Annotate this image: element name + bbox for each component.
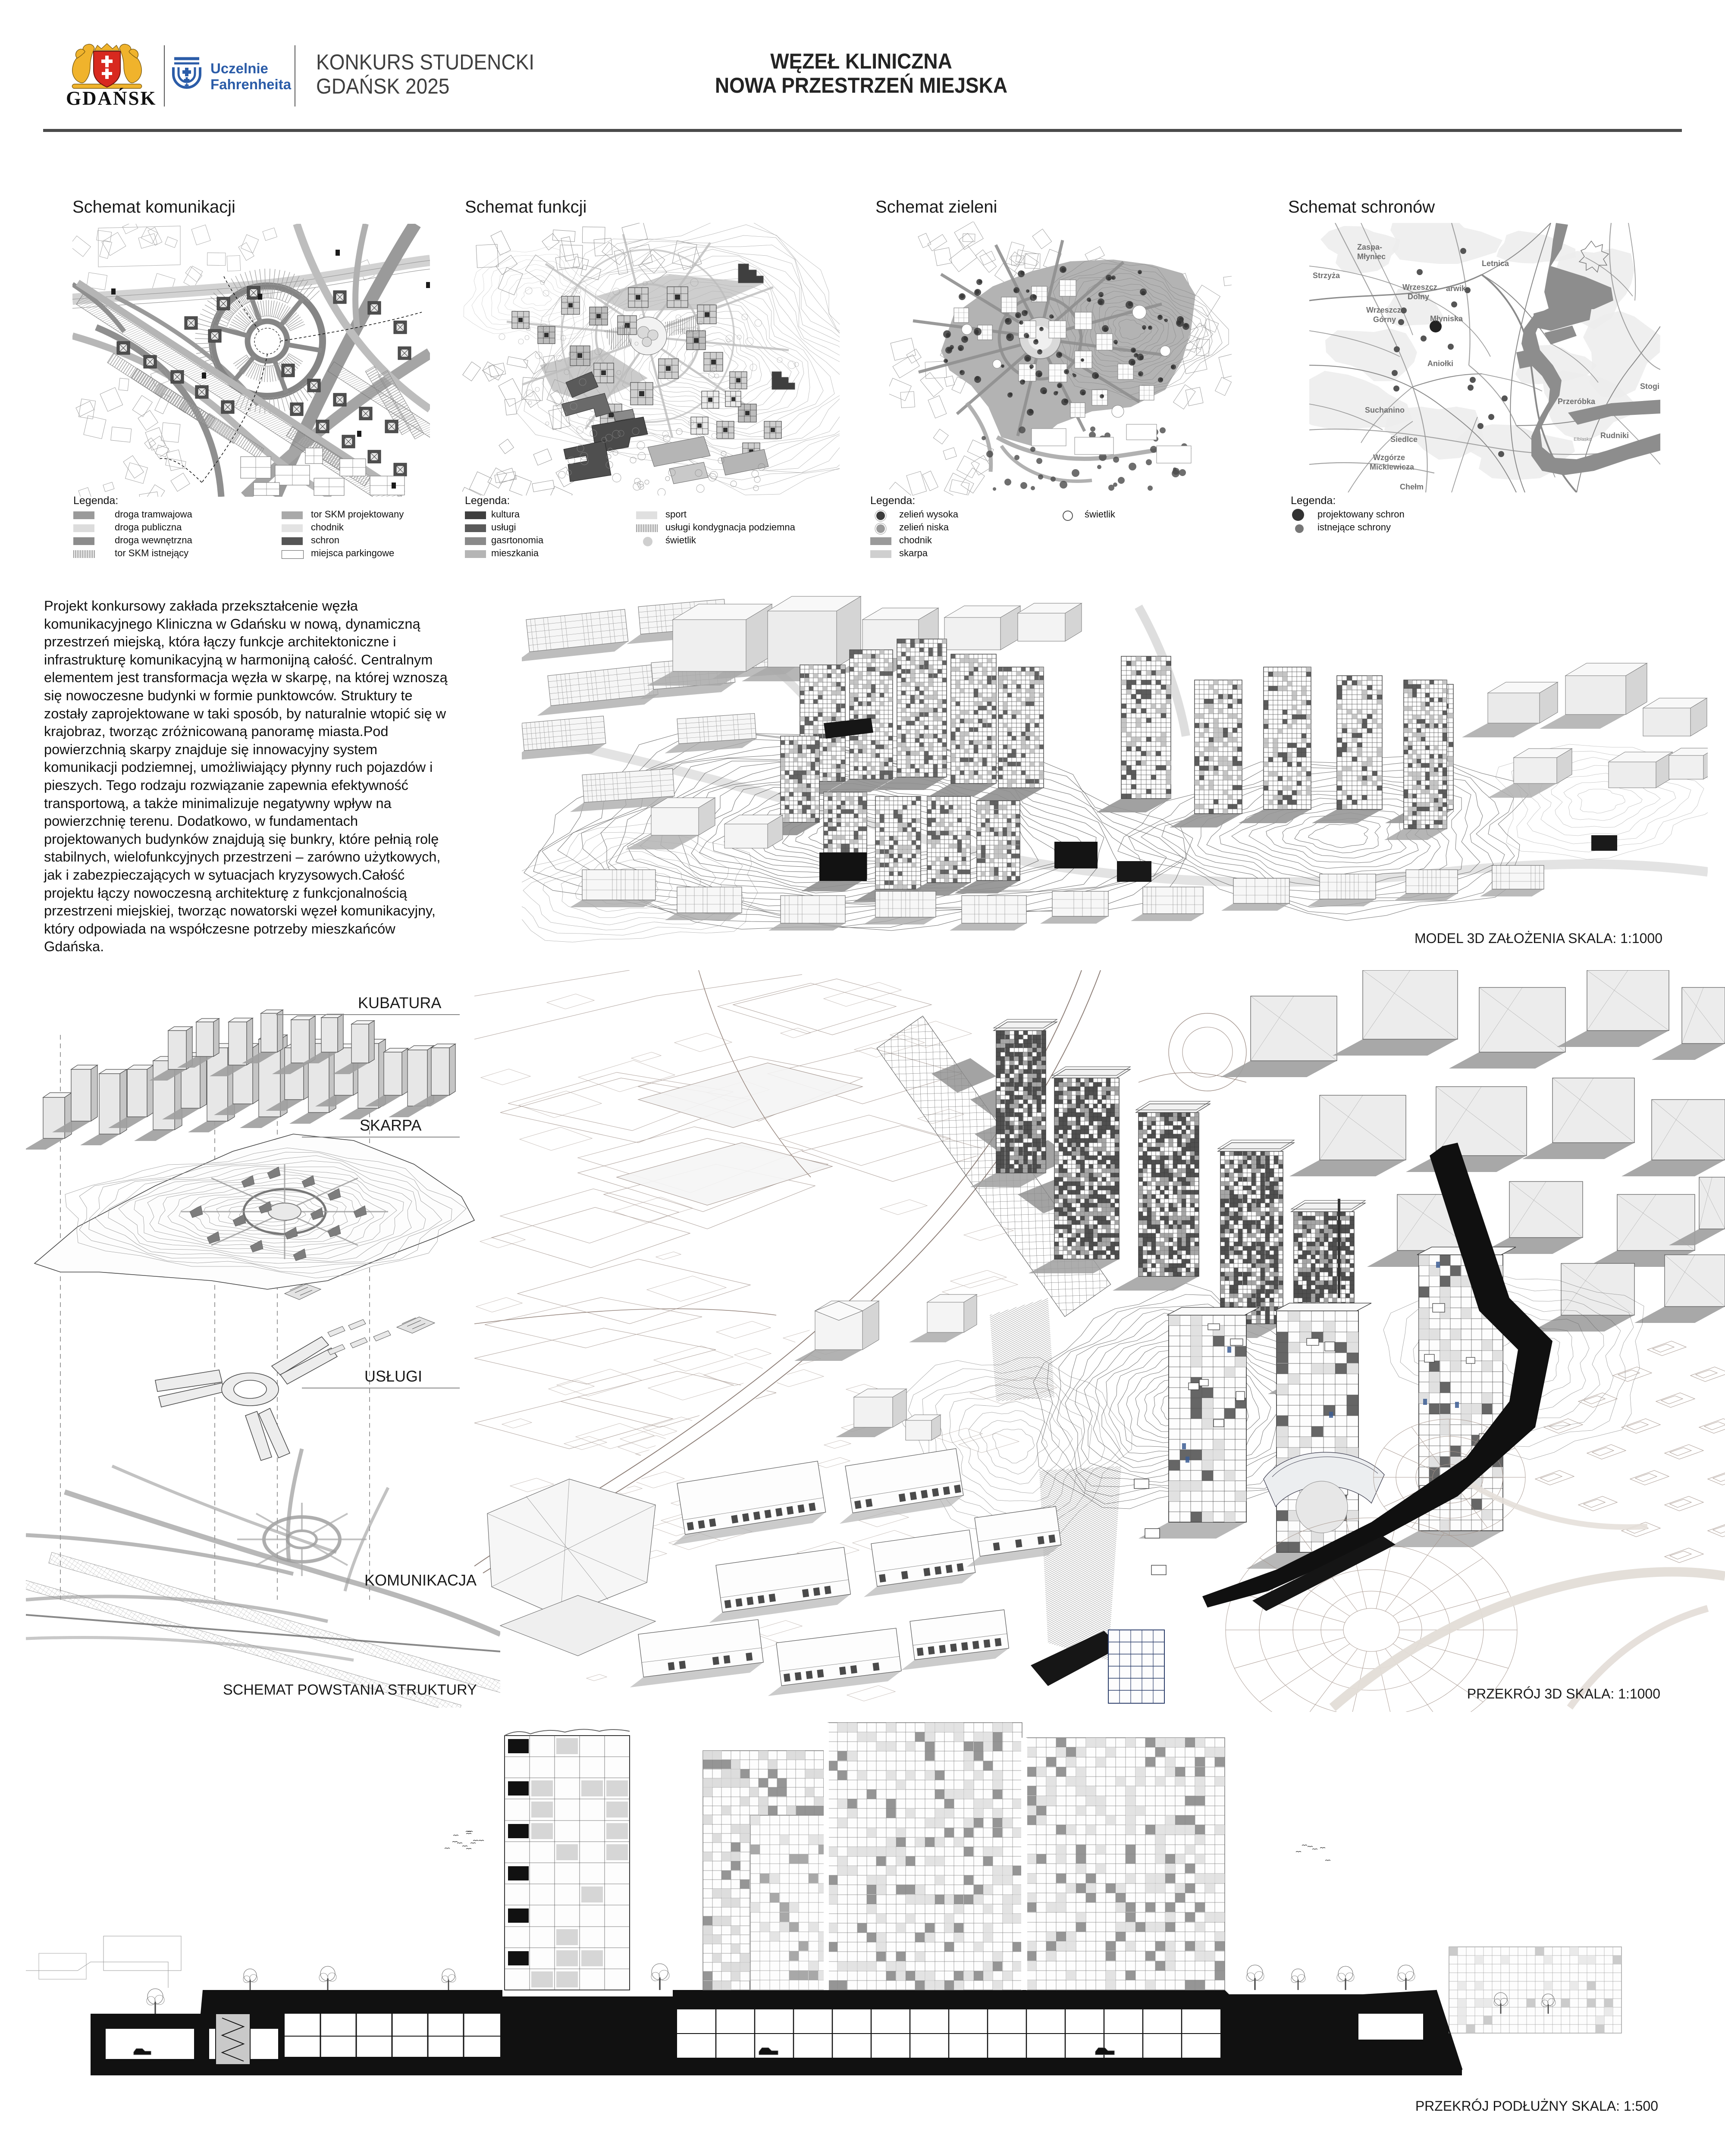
svg-text:Młyniska: Młyniska bbox=[1430, 314, 1463, 323]
svg-text:Strzyża: Strzyża bbox=[1313, 271, 1340, 280]
svg-text:Letnica: Letnica bbox=[1482, 259, 1509, 268]
svg-text:Dolny: Dolny bbox=[1408, 292, 1429, 301]
svg-text:Rudniki: Rudniki bbox=[1600, 431, 1629, 440]
svg-text:Suchanino: Suchanino bbox=[1365, 406, 1405, 414]
svg-text:Wrzeszcz: Wrzeszcz bbox=[1402, 283, 1437, 291]
svg-text:Stogi: Stogi bbox=[1640, 382, 1659, 391]
svg-text:Chełm: Chełm bbox=[1400, 483, 1424, 491]
svg-text:Przeróbka: Przeróbka bbox=[1558, 397, 1596, 406]
svg-text:Aniołki: Aniołki bbox=[1427, 359, 1453, 368]
svg-text:Siedlce: Siedlce bbox=[1390, 435, 1418, 444]
svg-text:Zaspa-: Zaspa- bbox=[1357, 243, 1382, 251]
svg-text:Młyniec: Młyniec bbox=[1357, 252, 1386, 261]
svg-text:Górny: Górny bbox=[1373, 315, 1396, 324]
svg-text:arwik: arwik bbox=[1446, 284, 1466, 293]
svg-text:Elblaska: Elblaska bbox=[1574, 437, 1592, 442]
svg-text:Wrzeszcz: Wrzeszcz bbox=[1366, 306, 1401, 314]
svg-text:Mickiewicza: Mickiewicza bbox=[1370, 463, 1414, 471]
svg-text:Wzgórze: Wzgórze bbox=[1373, 453, 1405, 462]
